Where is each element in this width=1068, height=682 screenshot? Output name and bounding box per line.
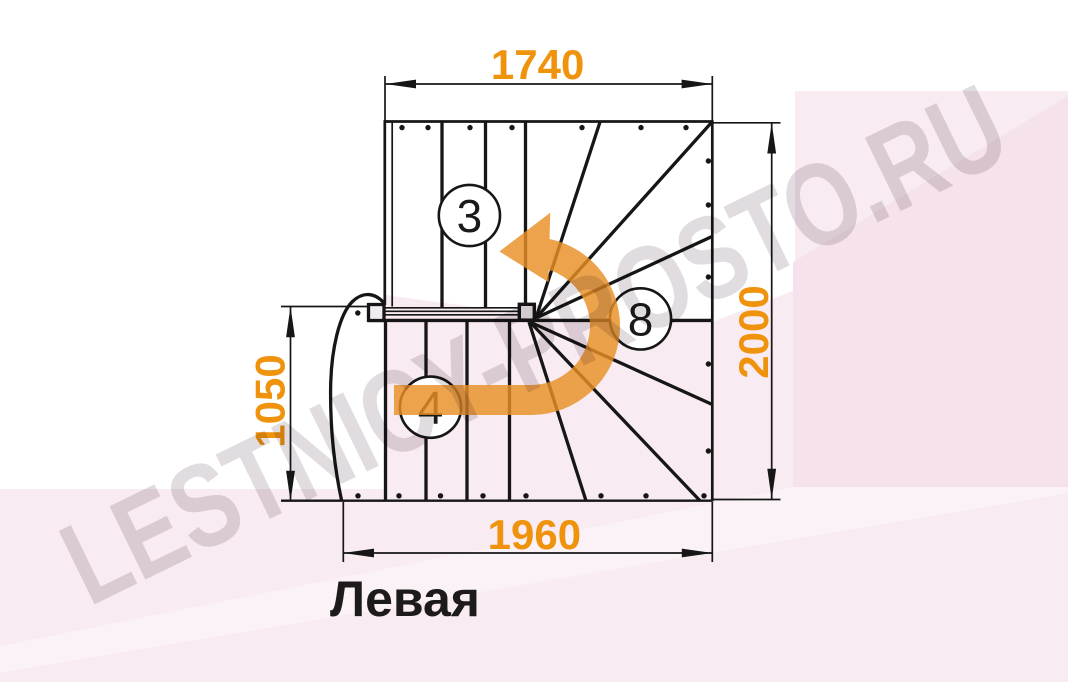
svg-text:3: 3 — [457, 190, 483, 242]
svg-text:1740: 1740 — [491, 41, 584, 88]
svg-text:1960: 1960 — [488, 511, 581, 558]
svg-text:Левая: Левая — [330, 571, 480, 627]
